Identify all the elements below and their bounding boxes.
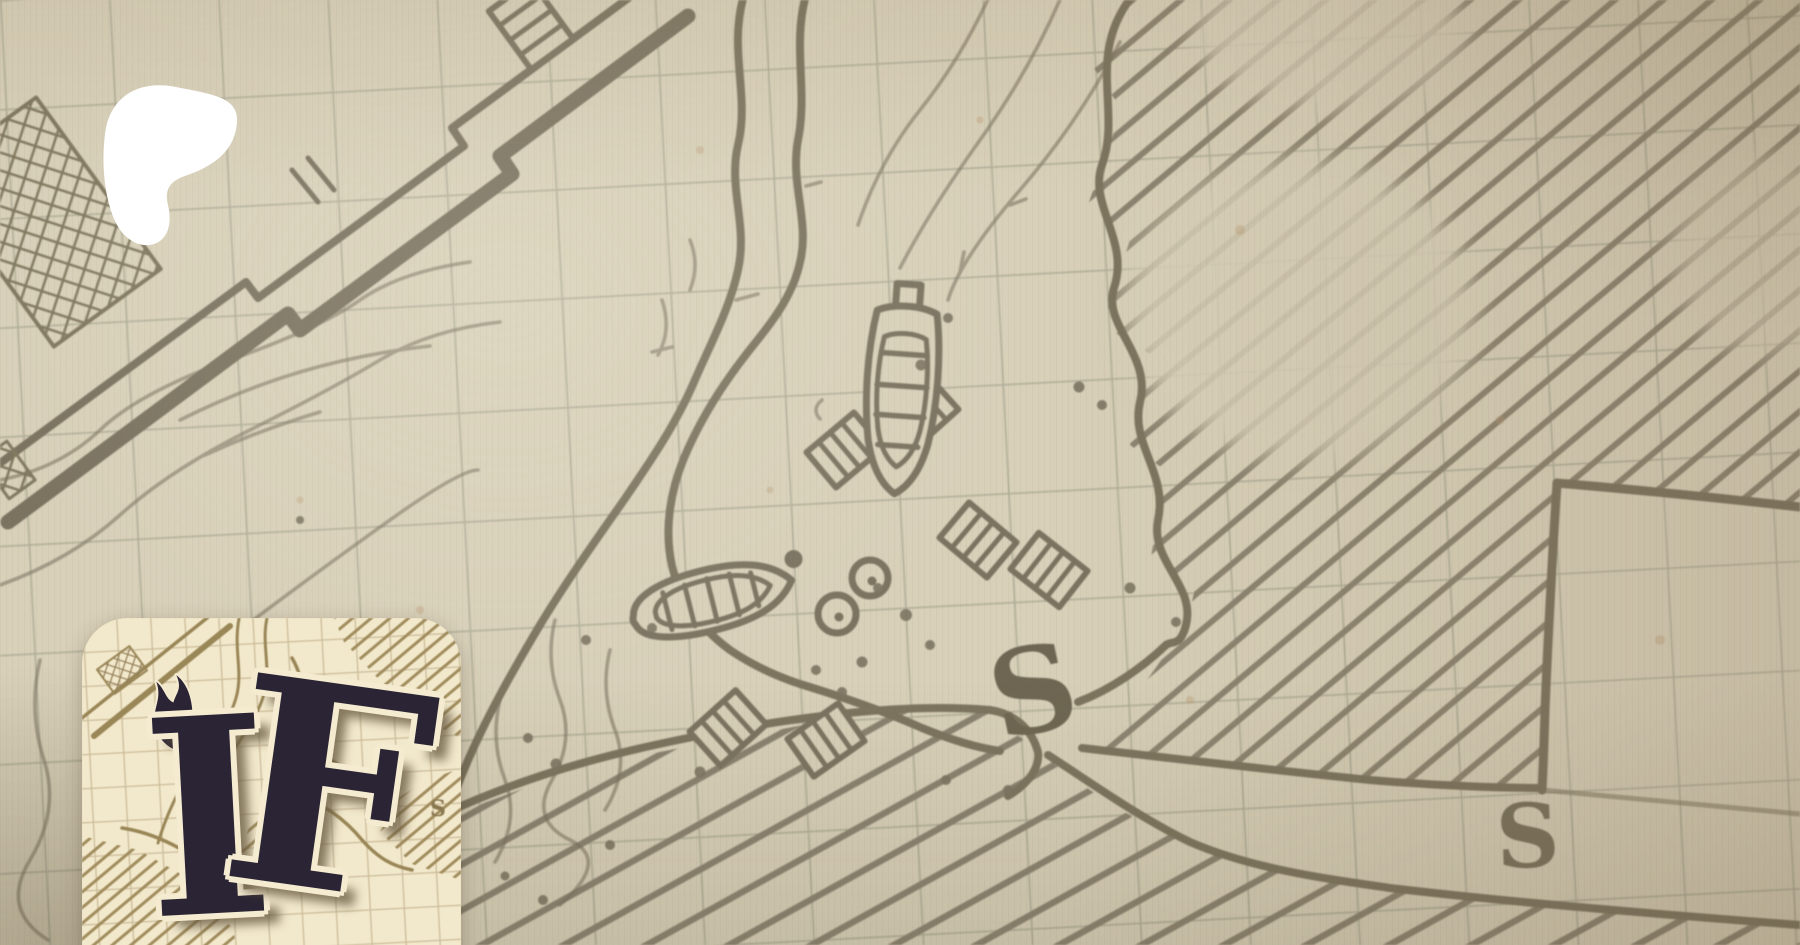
field-grid — [1542, 483, 1800, 812]
avatar-monogram: I F — [82, 618, 461, 945]
map-label-s-2: S — [1494, 783, 1561, 889]
creator-avatar[interactable]: S I F — [82, 618, 461, 945]
banner: S S — [0, 0, 1800, 945]
patreon-logo-icon[interactable] — [0, 0, 340, 300]
monogram-letter-f: F — [211, 636, 449, 943]
